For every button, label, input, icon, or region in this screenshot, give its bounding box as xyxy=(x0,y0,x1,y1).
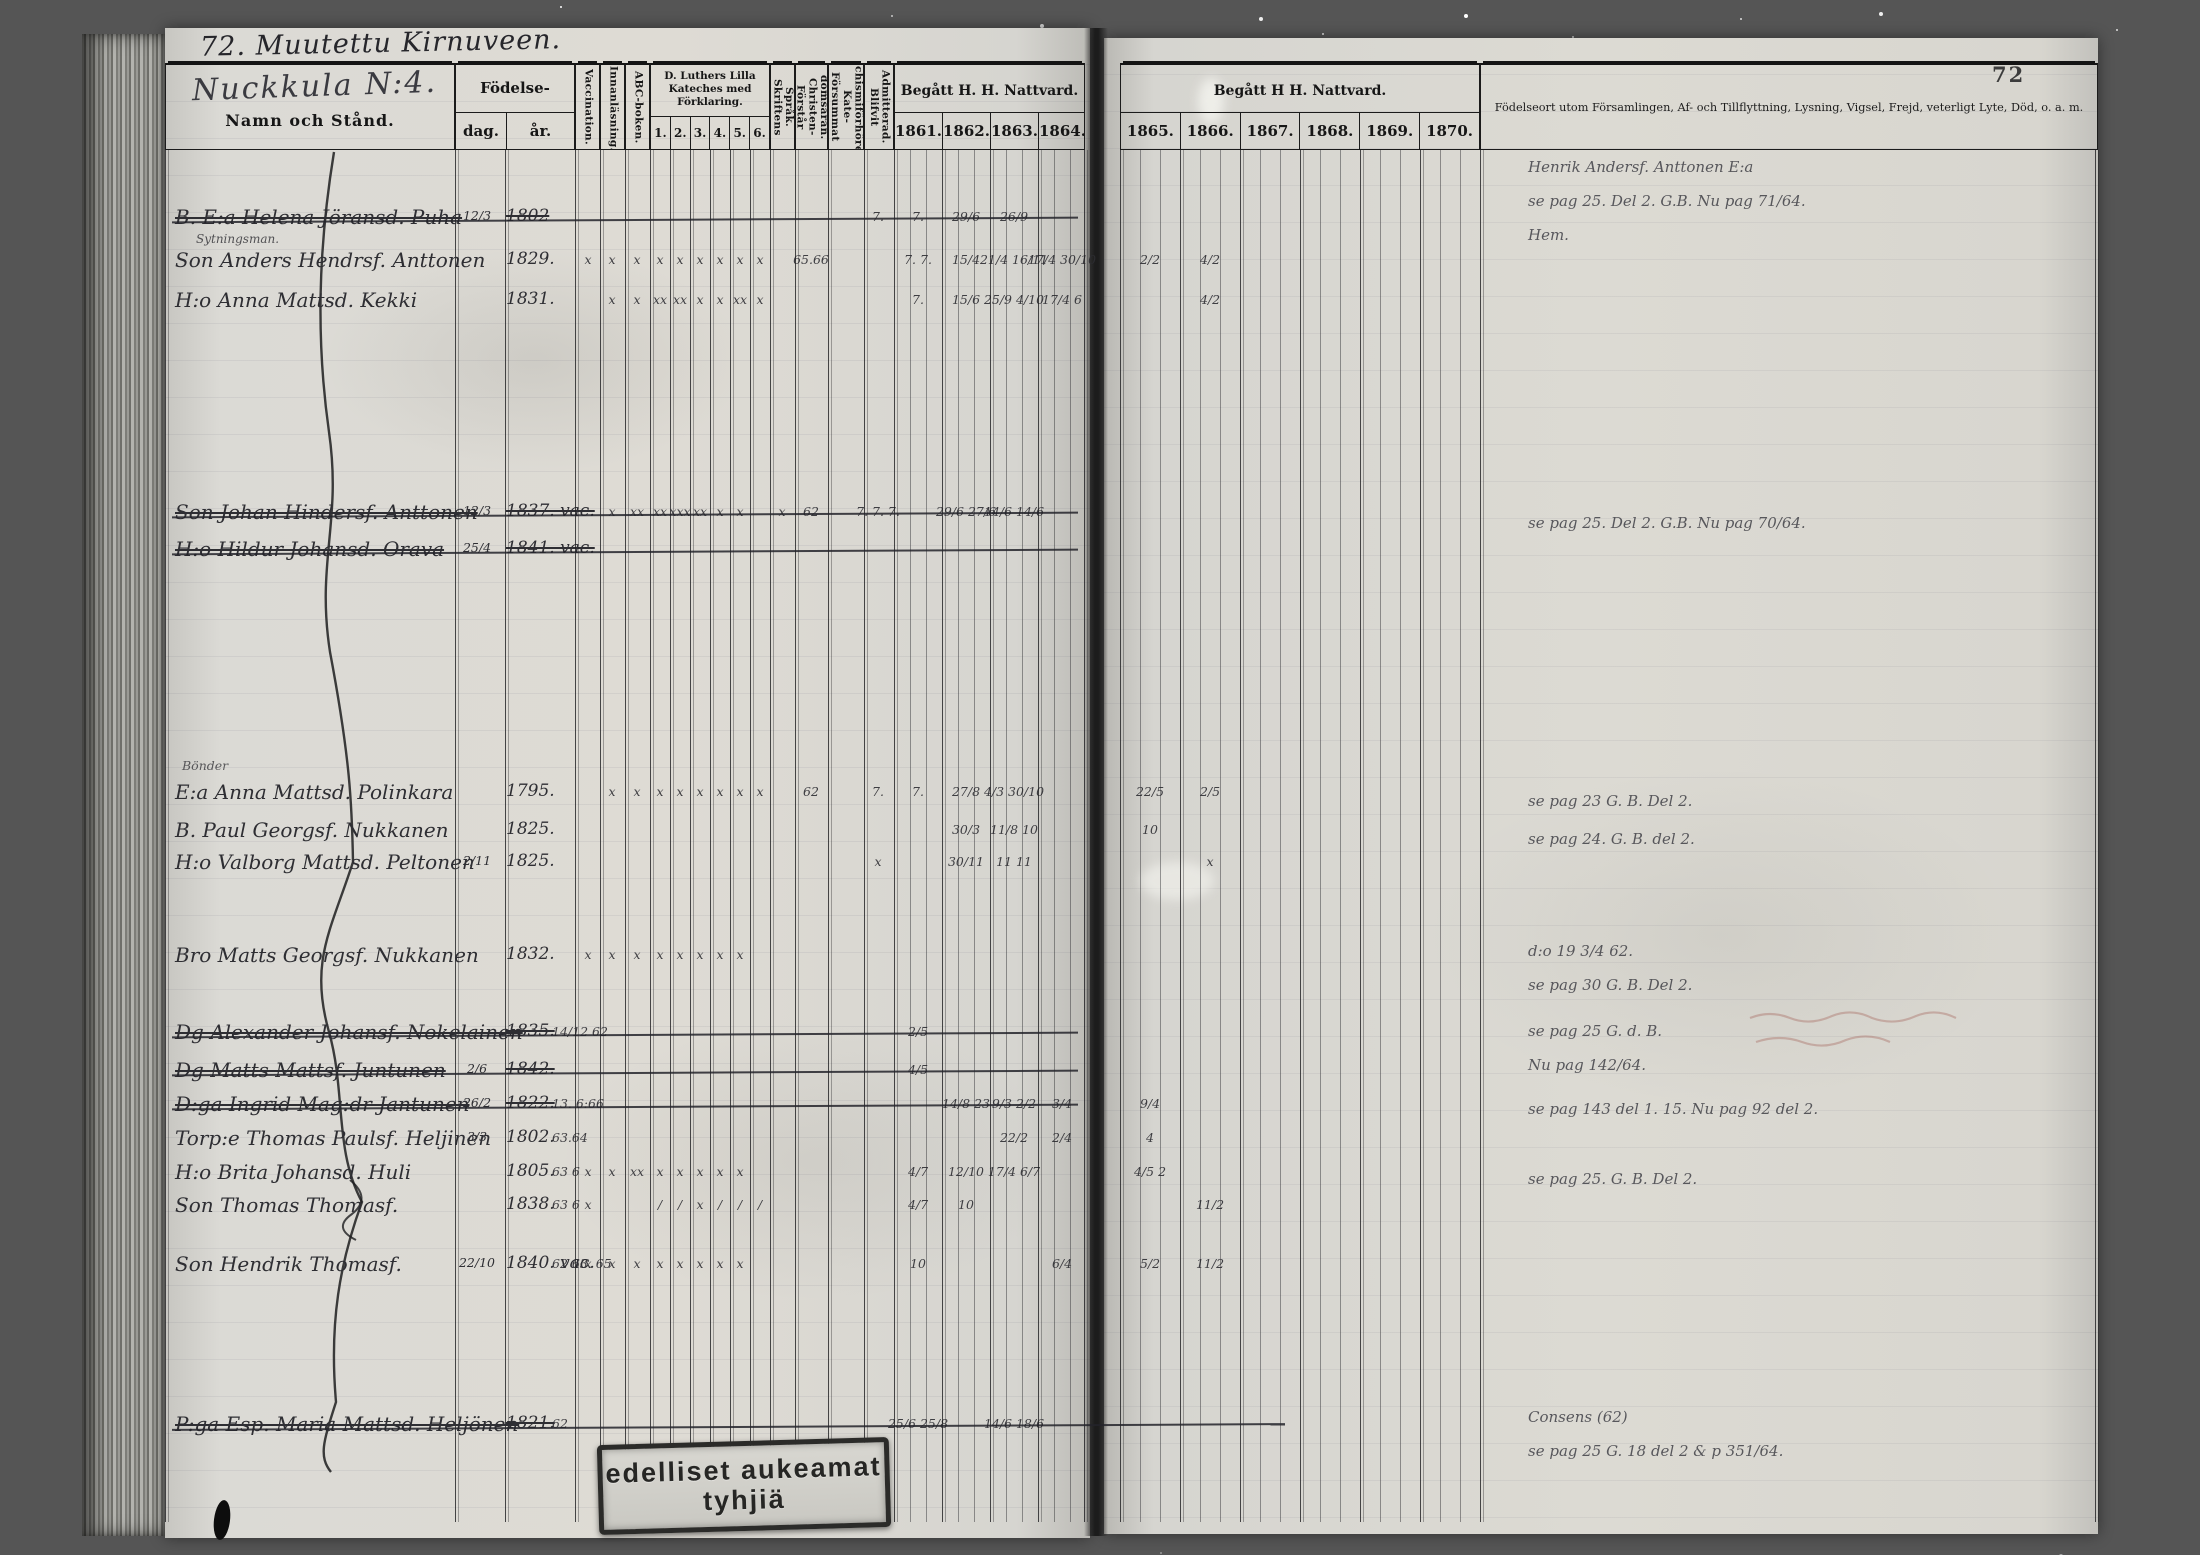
communion-mark: x xyxy=(584,1164,591,1179)
remark-note-line: Nu pag 142/64. xyxy=(1528,1048,1662,1082)
remark-note-line: d:o 19 3/4 62. xyxy=(1528,934,1692,968)
communion-mark: x xyxy=(633,292,640,307)
communion-mark: 15/4 xyxy=(952,252,980,267)
column-rule-twin xyxy=(1423,150,1424,1522)
year-header-1870: 1870. xyxy=(1419,113,1479,149)
column-rule-twin xyxy=(673,150,674,1522)
communion-mark: 2/5 xyxy=(1200,784,1220,799)
communion-mark: x xyxy=(736,252,743,267)
communion-mark: 4/2 xyxy=(1200,292,1220,307)
column-header-nattvard-left: Begått H. H. Nattvard. xyxy=(897,83,1082,99)
communion-mark: x xyxy=(696,1164,703,1179)
column-rule-twin xyxy=(578,150,579,1522)
handwritten-name: E:a Anna Mattsd. Polinkara xyxy=(175,780,453,804)
birth-year-value: 1805. xyxy=(506,1161,555,1181)
communion-mark: xx xyxy=(630,1164,644,1179)
header-cell-skriftens-sprak: Skriftens Språk. xyxy=(770,63,795,150)
communion-mark: xx xyxy=(630,504,644,519)
communion-mark: x xyxy=(716,784,723,799)
handwritten-name: Dg Matts Mattsf. Juntunen xyxy=(175,1058,446,1082)
communion-mark: 62 xyxy=(803,504,819,519)
column-rule xyxy=(770,150,771,1522)
communion-mark: x xyxy=(608,784,615,799)
handwritten-name: Bro Matts Georgsf. Nukkanen xyxy=(175,943,479,967)
handwritten-name: H:o Hildur Johansd. Orava xyxy=(175,537,444,561)
katekes-col-2: 2. xyxy=(670,117,690,149)
column-rule-twin xyxy=(168,150,169,1522)
year-header-1861: 1861. xyxy=(895,113,942,149)
column-rule xyxy=(1420,150,1421,1522)
communion-mark: 4 xyxy=(1146,1130,1154,1145)
communion-mark: x xyxy=(736,504,743,519)
remark-note: se pag 24. G. B. del 2. xyxy=(1528,822,1695,856)
handwritten-name: H:o Anna Mattsd. Kekki xyxy=(175,288,417,312)
column-rule-twin xyxy=(867,150,868,1522)
handwritten-name: H:o Brita Johansd. Huli xyxy=(175,1160,411,1184)
remark-note-line: se pag 25. Del 2. G.B. Nu pag 70/64. xyxy=(1528,506,1806,540)
communion-mark: x xyxy=(584,252,591,267)
communion-mark: x xyxy=(696,784,703,799)
communion-mark: x xyxy=(696,252,703,267)
column-rule-twin xyxy=(508,150,509,1522)
communion-mark: x xyxy=(716,504,723,519)
column-subrule xyxy=(1006,150,1007,1522)
column-header-nattvard-right: Begått H H. Nattvard. xyxy=(1123,83,1477,99)
column-rule-twin xyxy=(945,150,946,1522)
katekes-col-5: 5. xyxy=(729,117,749,149)
communion-mark: x xyxy=(716,292,723,307)
communion-mark: x xyxy=(656,1256,663,1271)
year-header-1867: 1867. xyxy=(1240,113,1300,149)
column-subrule xyxy=(1260,150,1261,1522)
scan-smudge xyxy=(1140,862,1214,900)
handwritten-name: Torp:e Thomas Paulsf. Heljinen xyxy=(175,1126,491,1150)
handwritten-name: H:o Valborg Mattsd. Peltonen xyxy=(175,850,475,874)
column-subrule xyxy=(1340,150,1341,1522)
stamp-text-line2: tyhjiä xyxy=(703,1485,786,1517)
column-subrule xyxy=(1400,150,1401,1522)
column-rule xyxy=(1084,150,1085,1522)
column-rule xyxy=(165,150,166,1522)
year-header-1869: 1869. xyxy=(1359,113,1419,149)
column-header-innanlasning: Innanläsning. xyxy=(607,66,619,148)
handwritten-name: Dg Alexander Johansf. Nokelainen xyxy=(175,1020,523,1044)
column-subrule xyxy=(974,150,975,1522)
header-cell-forsummat: Försummat Kate-chismiförhören. xyxy=(828,63,864,150)
communion-mark: 4/5 2 xyxy=(1134,1164,1166,1179)
column-rule xyxy=(1240,150,1241,1522)
communion-mark: / xyxy=(758,1197,762,1212)
column-rule-twin xyxy=(1183,150,1184,1522)
birth-year-value: 1829. xyxy=(506,249,555,269)
communion-mark: x xyxy=(736,947,743,962)
katekes-col-4: 4. xyxy=(709,117,729,149)
communion-mark: x xyxy=(716,252,723,267)
communion-mark: x xyxy=(716,1256,723,1271)
scanner-dust xyxy=(560,6,562,8)
column-rule-twin xyxy=(1123,150,1124,1522)
communion-mark: xx xyxy=(653,504,667,519)
column-rule-twin xyxy=(831,150,832,1522)
communion-mark: x xyxy=(676,1164,683,1179)
remark-note-line: se pag 30 G. B. Del 2. xyxy=(1528,968,1692,1002)
remark-note: Henrik Andersf. Anttonen E:ase pag 25. D… xyxy=(1528,150,1806,252)
communion-mark: x xyxy=(696,1256,703,1271)
column-rule xyxy=(750,150,751,1522)
communion-mark: x xyxy=(608,504,615,519)
birth-subheader-row: dag. år. xyxy=(456,112,574,149)
column-rule xyxy=(505,150,506,1522)
communion-mark: 7. xyxy=(912,292,924,307)
birth-year-value: 1831. xyxy=(506,289,555,309)
page-number: 72 xyxy=(1992,62,2025,87)
communion-mark: x xyxy=(736,1256,743,1271)
column-header-birth-year: år. xyxy=(506,113,574,149)
years-row-right: 1865. 1866. 1867. 1868. 1869. 1870. xyxy=(1121,112,1479,149)
communion-mark: / xyxy=(658,1197,662,1212)
communion-mark: x xyxy=(633,947,640,962)
column-rule-twin xyxy=(603,150,604,1522)
communion-mark: 7. 7. xyxy=(904,252,932,267)
column-subrule xyxy=(1320,150,1321,1522)
column-header-katekes: D. Luthers Lilla Kateches med Förklaring… xyxy=(653,70,767,109)
communion-mark: x xyxy=(676,252,683,267)
birth-year-value: 1832. xyxy=(506,944,555,964)
katekes-subheader-row: 1. 2. 3. 4. 5. 6. xyxy=(651,116,769,149)
column-rule xyxy=(828,150,829,1522)
column-rule-twin xyxy=(1363,150,1364,1522)
communion-mark: x xyxy=(676,784,683,799)
year-header-1865: 1865. xyxy=(1121,113,1180,149)
communion-mark: 11/8 10 xyxy=(990,822,1038,837)
handwritten-name: Son Johan Hindersf. Anttonen xyxy=(175,500,478,524)
column-header-forstar: Förstår Christen-domsäran. xyxy=(796,66,827,148)
handwritten-name: P:ga Esp. Maria Mattsd. Heljönen xyxy=(175,1412,518,1436)
communion-mark: / xyxy=(678,1197,682,1212)
remark-note-line: se pag 24. G. B. del 2. xyxy=(1528,822,1695,856)
header-cell-admitterad: Blifvit Admitterad. xyxy=(864,63,894,150)
communion-mark: x xyxy=(696,947,703,962)
remark-note-line: Hem. xyxy=(1528,218,1806,252)
remark-note-line: Henrik Andersf. Anttonen E:a xyxy=(1528,150,1806,184)
village-title: Nuckkula N:4. xyxy=(191,65,437,109)
communion-mark: x xyxy=(656,1164,663,1179)
handwritten-name: Son Hendrik Thomasf. xyxy=(175,1252,402,1276)
remark-note-line: se pag 25. Del 2. G.B. Nu pag 71/64. xyxy=(1528,184,1806,218)
communion-mark: 4/2 xyxy=(1200,252,1220,267)
column-rule-twin xyxy=(897,150,898,1522)
column-rule xyxy=(1120,150,1121,1522)
communion-mark: x xyxy=(874,854,881,869)
communion-mark: 30/11 xyxy=(948,854,984,869)
communion-mark: / xyxy=(738,1197,742,1212)
communion-mark: 10 xyxy=(910,1256,926,1271)
column-rule xyxy=(942,150,943,1522)
column-rule xyxy=(690,150,691,1522)
communion-mark: xx xyxy=(673,292,687,307)
column-subrule xyxy=(1280,150,1281,1522)
column-rule-twin xyxy=(1243,150,1244,1522)
header-cell-birth: Födelse- dag. år. xyxy=(455,63,575,150)
remark-note-line: se pag 25. G. B. Del 2. xyxy=(1528,1162,1697,1196)
birth-year-value: 1802. xyxy=(506,1127,555,1147)
remark-note-line: Consens (62) xyxy=(1528,1400,1783,1434)
column-header-skriftens-sprak: Skriftens Språk. xyxy=(771,66,794,148)
column-rule xyxy=(1360,150,1361,1522)
column-rule xyxy=(710,150,711,1522)
communion-mark: x xyxy=(756,292,763,307)
column-rule xyxy=(650,150,651,1522)
header-cell-nattvard-right: Begått H H. Nattvard. 1865. 1866. 1867. … xyxy=(1120,63,1480,150)
communion-mark: x xyxy=(756,252,763,267)
column-rule-twin xyxy=(773,150,774,1522)
communion-mark: x xyxy=(633,252,640,267)
katekes-col-6: 6. xyxy=(749,117,769,149)
communion-mark: 5/2 xyxy=(1140,1256,1160,1271)
remark-note: se pag 25. Del 2. G.B. Nu pag 70/64. xyxy=(1528,506,1806,540)
communion-mark: 62 xyxy=(803,784,819,799)
communion-mark: x xyxy=(656,947,663,962)
column-header-remarks: Födelseort utom Församlingen, Af- och Ti… xyxy=(1495,101,2084,114)
column-rule-twin xyxy=(993,150,994,1522)
column-subrule xyxy=(1200,150,1201,1522)
communion-mark: 7. xyxy=(872,784,884,799)
column-header-forsummat: Försummat Kate-chismiförhören. xyxy=(829,66,863,148)
birth-year-value: 1795. xyxy=(506,781,555,801)
communion-mark: x xyxy=(608,252,615,267)
column-subrule xyxy=(958,150,959,1522)
communion-mark: 27/8 xyxy=(952,784,980,799)
katekes-col-3: 3. xyxy=(690,117,710,149)
communion-mark: 10 xyxy=(1142,822,1158,837)
column-rule xyxy=(894,150,895,1522)
communion-mark: x xyxy=(696,292,703,307)
column-rule-twin xyxy=(693,150,694,1522)
remark-note: se pag 25. G. B. Del 2. xyxy=(1528,1162,1697,1196)
communion-mark: x xyxy=(736,1164,743,1179)
birth-year-value: 1802 xyxy=(506,206,549,226)
communion-mark: x xyxy=(656,252,663,267)
column-subrule xyxy=(1380,150,1381,1522)
column-rule-twin xyxy=(1483,150,1484,1522)
communion-mark: x xyxy=(716,947,723,962)
remark-note-line: se pag 25 G. d. B. xyxy=(1528,1014,1662,1048)
year-header-1868: 1868. xyxy=(1299,113,1359,149)
column-subrule xyxy=(1140,150,1141,1522)
communion-mark: 11 11 xyxy=(996,854,1032,869)
column-rule xyxy=(864,150,865,1522)
communion-mark: 22/2 xyxy=(1000,1130,1028,1145)
remark-note-line: se pag 23 G. B. Del 2. xyxy=(1528,784,1692,818)
column-rule xyxy=(2095,150,2096,1522)
communion-mark: 9/4 xyxy=(1140,1096,1160,1111)
remark-note: d:o 19 3/4 62.se pag 30 G. B. Del 2. xyxy=(1528,934,1692,1002)
birth-day-value: 22/10 xyxy=(459,1255,495,1270)
birth-year-value: 1842. xyxy=(506,1059,555,1079)
communion-mark: 63.64 xyxy=(552,1130,588,1145)
communion-mark: xx xyxy=(733,292,747,307)
remark-note-line: se pag 143 del 1. 15. Nu pag 92 del 2. xyxy=(1528,1092,1818,1126)
column-rule xyxy=(670,150,671,1522)
communion-mark: 7. xyxy=(872,209,884,224)
communion-mark: x xyxy=(676,947,683,962)
communion-mark: x xyxy=(584,947,591,962)
column-rule xyxy=(1480,150,1481,1522)
birth-year-value: 1838. xyxy=(506,1194,555,1214)
header-cell-name: Nuckkula N:4. Namn och Stånd. xyxy=(165,63,455,150)
communion-mark: 2/2 xyxy=(1140,252,1160,267)
communion-mark: 17/4 6/7 xyxy=(988,1164,1040,1179)
communion-mark: x xyxy=(756,784,763,799)
column-subrule xyxy=(1070,150,1071,1522)
column-rule xyxy=(795,150,796,1522)
communion-mark: 12/10 xyxy=(948,1164,984,1179)
handwritten-name: Son Anders Hendrsf. Anttonen xyxy=(175,248,485,272)
years-row-left: 1861. 1862. 1863. 1864. xyxy=(895,112,1084,149)
communion-mark: x xyxy=(656,784,663,799)
remark-note-line: se pag 25 G. 18 del 2 & p 351/64. xyxy=(1528,1434,1783,1468)
column-rule-twin xyxy=(2098,150,2099,1522)
column-rule xyxy=(1300,150,1301,1522)
column-subrule xyxy=(1054,150,1055,1522)
page-stack-edge xyxy=(82,34,166,1536)
column-rule xyxy=(625,150,626,1522)
katekes-col-1: 1. xyxy=(651,117,670,149)
section-label: Bönder xyxy=(182,758,228,773)
archive-stamp: edelliset aukeamat tyhjiä xyxy=(597,1437,891,1535)
communion-mark: 10 xyxy=(958,1197,974,1212)
handwritten-name: D:ga Ingrid Mag:dr Jantunen xyxy=(175,1092,470,1116)
handwritten-name: B. Paul Georgsf. Nukkanen xyxy=(175,818,449,842)
birth-year-value: 1825. xyxy=(506,851,555,871)
column-rule-twin xyxy=(1087,150,1088,1522)
handwritten-subnote: Sytningsman. xyxy=(196,232,279,246)
communion-mark: 15/6 xyxy=(952,292,980,307)
column-header-admitterad: Blifvit Admitterad. xyxy=(867,66,890,148)
communion-mark: x xyxy=(716,1164,723,1179)
column-subrule xyxy=(926,150,927,1522)
handwritten-name: Son Thomas Thomasf. xyxy=(175,1193,398,1217)
header-cell-nattvard-left: Begått H. H. Nattvard. 1861. 1862. 1863.… xyxy=(894,63,1085,150)
remark-note: se pag 23 G. B. Del 2. xyxy=(1528,784,1692,818)
communion-mark: x xyxy=(633,784,640,799)
communion-mark: 7. xyxy=(912,784,924,799)
remark-note: se pag 25 G. d. B.Nu pag 142/64. xyxy=(1528,1014,1662,1082)
column-rule xyxy=(1180,150,1181,1522)
column-rule xyxy=(990,150,991,1522)
communion-mark: x xyxy=(608,947,615,962)
birth-year-value: 1837. vac. xyxy=(506,501,595,521)
column-rule-twin xyxy=(653,150,654,1522)
column-subrule xyxy=(1220,150,1221,1522)
column-rule-twin xyxy=(1041,150,1042,1522)
communion-mark: 17/4 6 xyxy=(1042,292,1082,307)
column-rule-twin xyxy=(628,150,629,1522)
header-cell-abc-boken: ABC-boken. xyxy=(625,63,650,150)
birth-year-value: 1822. xyxy=(506,1093,555,1113)
communion-mark: x xyxy=(633,1256,640,1271)
column-rule-twin xyxy=(1303,150,1304,1522)
column-rule xyxy=(1038,150,1039,1522)
column-subrule xyxy=(1440,150,1441,1522)
communion-mark: x xyxy=(676,1256,683,1271)
communion-mark: x xyxy=(1206,854,1213,869)
communion-mark: x xyxy=(736,784,743,799)
birth-year-value: 1825. xyxy=(506,819,555,839)
communion-mark: x xyxy=(778,504,785,519)
remark-note: Consens (62)se pag 25 G. 18 del 2 & p 35… xyxy=(1528,1400,1783,1468)
column-rule-twin xyxy=(753,150,754,1522)
column-rule-twin xyxy=(798,150,799,1522)
year-header-1863: 1863. xyxy=(990,113,1038,149)
column-rule xyxy=(455,150,456,1522)
column-rule-twin xyxy=(458,150,459,1522)
column-subrule xyxy=(1160,150,1161,1522)
column-rule-twin xyxy=(733,150,734,1522)
communion-mark: xx xyxy=(653,292,667,307)
header-cell-innanlasning: Innanläsning. xyxy=(600,63,625,150)
header-cell-forstar: Förstår Christen-domsäran. xyxy=(795,63,828,150)
column-subrule xyxy=(1460,150,1461,1522)
column-subrule xyxy=(1022,150,1023,1522)
column-rule xyxy=(730,150,731,1522)
communion-mark: x xyxy=(696,1197,703,1212)
scanned-book-spread: Nuckkula N:4. Namn och Stånd. Födelse- d… xyxy=(0,0,2200,1555)
column-header-birth-day: dag. xyxy=(456,113,506,149)
communion-mark: / xyxy=(718,1197,722,1212)
handwritten-name: B. E:a Helena Jöransd. Puha xyxy=(175,205,462,229)
birth-year-value: 1841. vac. xyxy=(506,538,595,558)
column-header-birth: Födelse- xyxy=(458,79,572,97)
communion-mark: 30/3 xyxy=(952,822,980,837)
header-cell-katekes: D. Luthers Lilla Kateches med Förklaring… xyxy=(650,63,770,150)
year-header-1866: 1866. xyxy=(1180,113,1240,149)
communion-mark: xx xyxy=(693,504,707,519)
remark-note: se pag 143 del 1. 15. Nu pag 92 del 2. xyxy=(1528,1092,1818,1126)
column-header-abc-boken: ABC-boken. xyxy=(632,71,644,144)
column-rule-twin xyxy=(713,150,714,1522)
header-cell-vaccination: Vaccination. xyxy=(575,63,600,150)
column-header-name: Namn och Stånd. xyxy=(166,111,454,130)
year-header-1862: 1862. xyxy=(942,113,990,149)
column-subrule xyxy=(910,150,911,1522)
column-rule xyxy=(575,150,576,1522)
communion-mark: x xyxy=(608,292,615,307)
communion-mark: x xyxy=(608,1164,615,1179)
year-header-1864: 1864. xyxy=(1038,113,1086,149)
column-rule xyxy=(600,150,601,1522)
column-header-vaccination: Vaccination. xyxy=(582,69,594,145)
communion-mark: x xyxy=(584,1197,591,1212)
